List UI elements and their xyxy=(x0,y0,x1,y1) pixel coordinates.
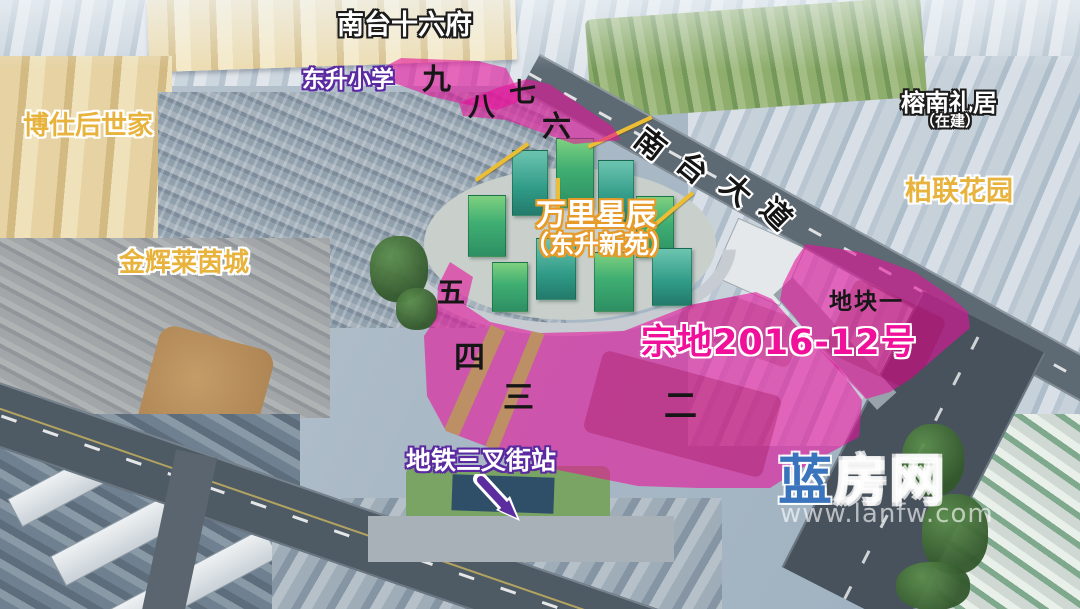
watermark-url: www.lanfw.com xyxy=(780,499,994,529)
tree-cluster xyxy=(396,288,438,330)
landmark-label-jinhui: 金辉莱茵城 xyxy=(119,249,249,279)
parcel-number-seven: 七 xyxy=(509,71,536,110)
parcel-number-block-one: 地块一 xyxy=(829,282,904,316)
parcel-number-three: 三 xyxy=(503,372,534,417)
landmark-label-boshihou: 博仕后世家 xyxy=(23,112,153,142)
parcel-number-eight: 八 xyxy=(468,85,495,124)
metro-arrow-icon xyxy=(472,474,528,526)
landmark-label-wanli-xingchen: 万里星辰 xyxy=(536,199,656,234)
tree-cluster xyxy=(896,562,970,609)
parcel-number-two: 二 xyxy=(664,379,697,427)
parcel-number-six: 六 xyxy=(542,103,571,145)
landmark-sublabel-dongsheng-xinyuan: （东升新苑） xyxy=(524,231,674,260)
construction-tower xyxy=(594,252,634,312)
landmark-label-bolian-garden: 柏联花园 xyxy=(905,176,1013,207)
metro-station-label: 地铁三叉街站 xyxy=(406,447,556,476)
distance-haze xyxy=(0,0,1080,70)
landmark-label-nantai-shiliufu: 南台十六府 xyxy=(337,10,472,41)
parcel-number-five: 五 xyxy=(437,271,465,311)
construction-tower xyxy=(492,262,528,312)
boshihou-buildings xyxy=(0,56,172,248)
parcel-number-nine: 九 xyxy=(422,56,451,98)
aerial-parcel-map: 南台十六府 东升小学 博仕后世家 金辉莱茵城 万里星辰 （东升新苑） 榕南礼居 … xyxy=(0,0,1080,609)
landmark-sublabel-under-construction: （在建） xyxy=(901,113,999,130)
parcel-number-four: 四 xyxy=(454,332,485,377)
plot-id-label: 宗地2016-12号 xyxy=(641,323,917,363)
construction-tower xyxy=(468,195,506,257)
landmark-label-dongsheng-school: 东升小学 xyxy=(302,67,394,93)
